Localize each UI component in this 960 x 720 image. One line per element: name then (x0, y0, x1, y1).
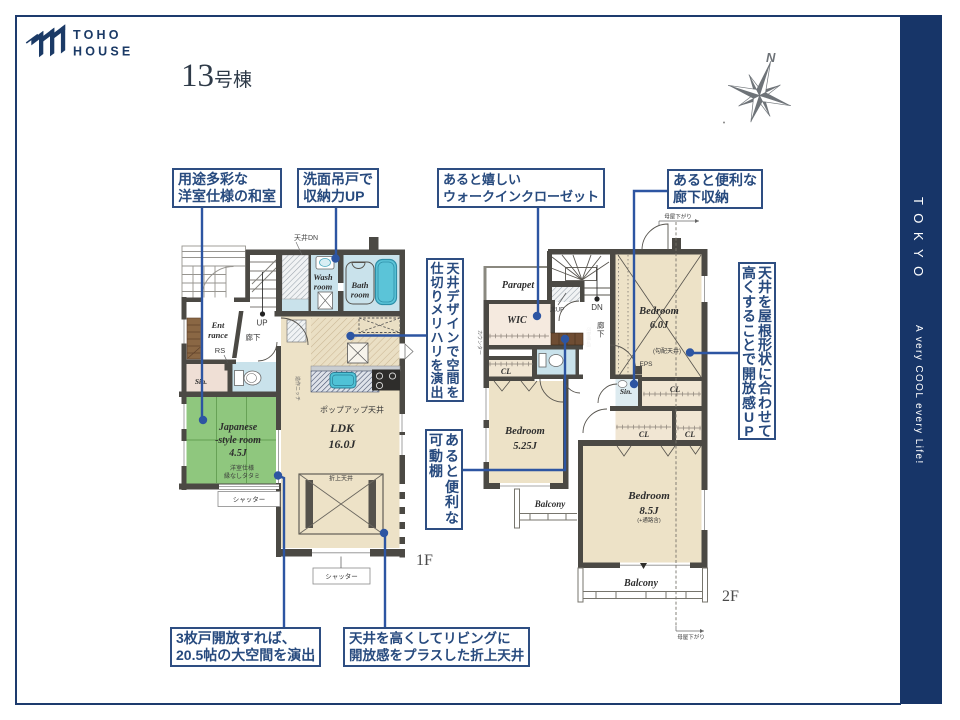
svg-text:カウンター: カウンター (476, 330, 483, 355)
svg-text:WIC: WIC (507, 315, 527, 326)
svg-text:可動棚4段: 可動棚4段 (585, 327, 592, 348)
svg-text:縁なしタタミ: 縁なしタタミ (224, 472, 260, 480)
svg-text:5.25J: 5.25J (513, 441, 537, 452)
svg-text:rance: rance (208, 330, 228, 340)
svg-text:シャッター: シャッター (325, 572, 358, 581)
svg-text:4.5J: 4.5J (228, 448, 248, 459)
svg-text:Ent: Ent (211, 320, 225, 330)
svg-text:Balcony: Balcony (534, 499, 567, 509)
svg-text:(勾配天井): (勾配天井) (653, 347, 681, 355)
svg-text:シャッター: シャッター (233, 495, 266, 504)
svg-text:Bedroom: Bedroom (504, 426, 545, 437)
svg-text:母屋下がり: 母屋下がり (664, 213, 692, 221)
svg-text:造作ニッチ: 造作ニッチ (294, 376, 301, 401)
svg-text:Bath: Bath (350, 280, 368, 290)
svg-text:DN: DN (591, 303, 603, 312)
svg-text:Balcony: Balcony (623, 578, 658, 589)
svg-text:下: 下 (597, 330, 605, 339)
svg-text:UP: UP (256, 319, 267, 328)
svg-text:廊: 廊 (597, 320, 605, 330)
svg-text:room: room (351, 290, 370, 300)
svg-text:母屋下がり: 母屋下がり (677, 633, 705, 641)
svg-text:RS: RS (215, 346, 225, 355)
svg-text:CL: CL (501, 367, 511, 376)
svg-text:Bedroom: Bedroom (638, 306, 679, 317)
svg-text:Parapet: Parapet (502, 280, 535, 291)
svg-text:Bedroom: Bedroom (627, 490, 670, 502)
svg-text:16.0J: 16.0J (329, 437, 357, 451)
svg-text:room: room (314, 282, 333, 292)
svg-text:CL: CL (639, 430, 649, 439)
svg-text:8.5J: 8.5J (639, 505, 659, 517)
svg-text:CL: CL (685, 430, 695, 439)
svg-text:廊下: 廊下 (246, 332, 261, 342)
svg-text:1F: 1F (416, 552, 433, 569)
svg-text:CL: CL (670, 385, 680, 394)
svg-text:N: N (766, 50, 776, 65)
svg-text:6.0J: 6.0J (650, 320, 669, 331)
svg-text:Wash: Wash (313, 272, 332, 282)
svg-text:-style room: -style room (215, 435, 261, 446)
svg-text:ポップアップ天井: ポップアップ天井 (320, 405, 384, 415)
svg-text:(+通路含): (+通路含) (637, 516, 661, 524)
svg-text:EPS: EPS (639, 361, 653, 368)
svg-text:洋室仕様: 洋室仕様 (230, 464, 254, 472)
svg-text:LDK: LDK (329, 421, 355, 435)
svg-text:折上天井: 折上天井 (329, 475, 353, 483)
svg-text:Japanese: Japanese (218, 422, 258, 433)
svg-text:2F: 2F (722, 588, 739, 605)
svg-text:Sin.: Sin. (620, 387, 632, 396)
svg-text:床UP: 床UP (550, 306, 564, 314)
svg-text:天井DN: 天井DN (294, 233, 318, 242)
